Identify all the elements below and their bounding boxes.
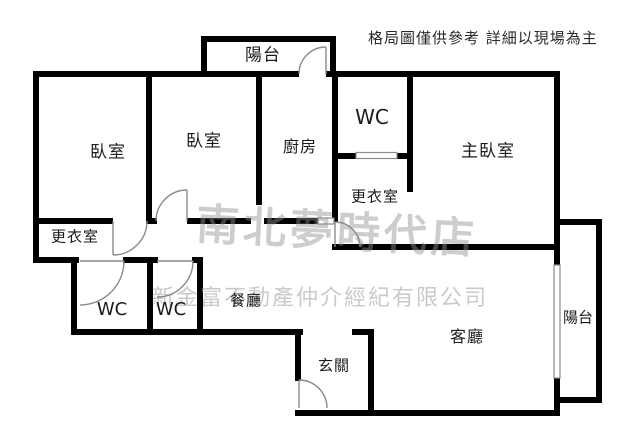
door-bedroom2 bbox=[156, 190, 187, 221]
room-label-wc-top: WC bbox=[355, 107, 389, 127]
room-label-wc-left: WC bbox=[97, 301, 127, 319]
floorplan: 格局圖僅供參考 詳細以現場為主 南北夢時代店 新金富不動產仲介經紀有限公司 陽台… bbox=[0, 0, 640, 443]
door-bedroom1-dressing bbox=[113, 221, 147, 255]
room-label-dressing-right: 更衣室 bbox=[351, 190, 399, 205]
windows bbox=[318, 153, 560, 379]
disclaimer-note: 格局圖僅供參考 詳細以現場為主 bbox=[368, 27, 598, 48]
room-label-balcony-right: 陽台 bbox=[563, 311, 593, 326]
room-label-kitchen: 廚房 bbox=[283, 139, 317, 155]
pocket-door-wc-top bbox=[356, 153, 397, 159]
room-label-bedroom1: 臥室 bbox=[90, 145, 126, 162]
door-balcony-top bbox=[299, 47, 326, 74]
door-entrance bbox=[299, 380, 327, 408]
window-living-balcony bbox=[554, 265, 560, 378]
room-label-living: 客廳 bbox=[450, 329, 484, 345]
room-label-dressing-left: 更衣室 bbox=[51, 230, 99, 245]
room-label-wc-mid: WC bbox=[156, 301, 186, 319]
room-label-dining: 餐廳 bbox=[230, 294, 262, 309]
room-label-foyer: 玄關 bbox=[318, 359, 350, 374]
room-label-balcony-top: 陽台 bbox=[245, 48, 281, 65]
watermark-agency-name: 新金富不動產仲介經紀有限公司 bbox=[152, 280, 488, 312]
room-label-bedroom2: 臥室 bbox=[186, 134, 222, 151]
room-label-master-bedroom: 主臥室 bbox=[461, 144, 515, 161]
